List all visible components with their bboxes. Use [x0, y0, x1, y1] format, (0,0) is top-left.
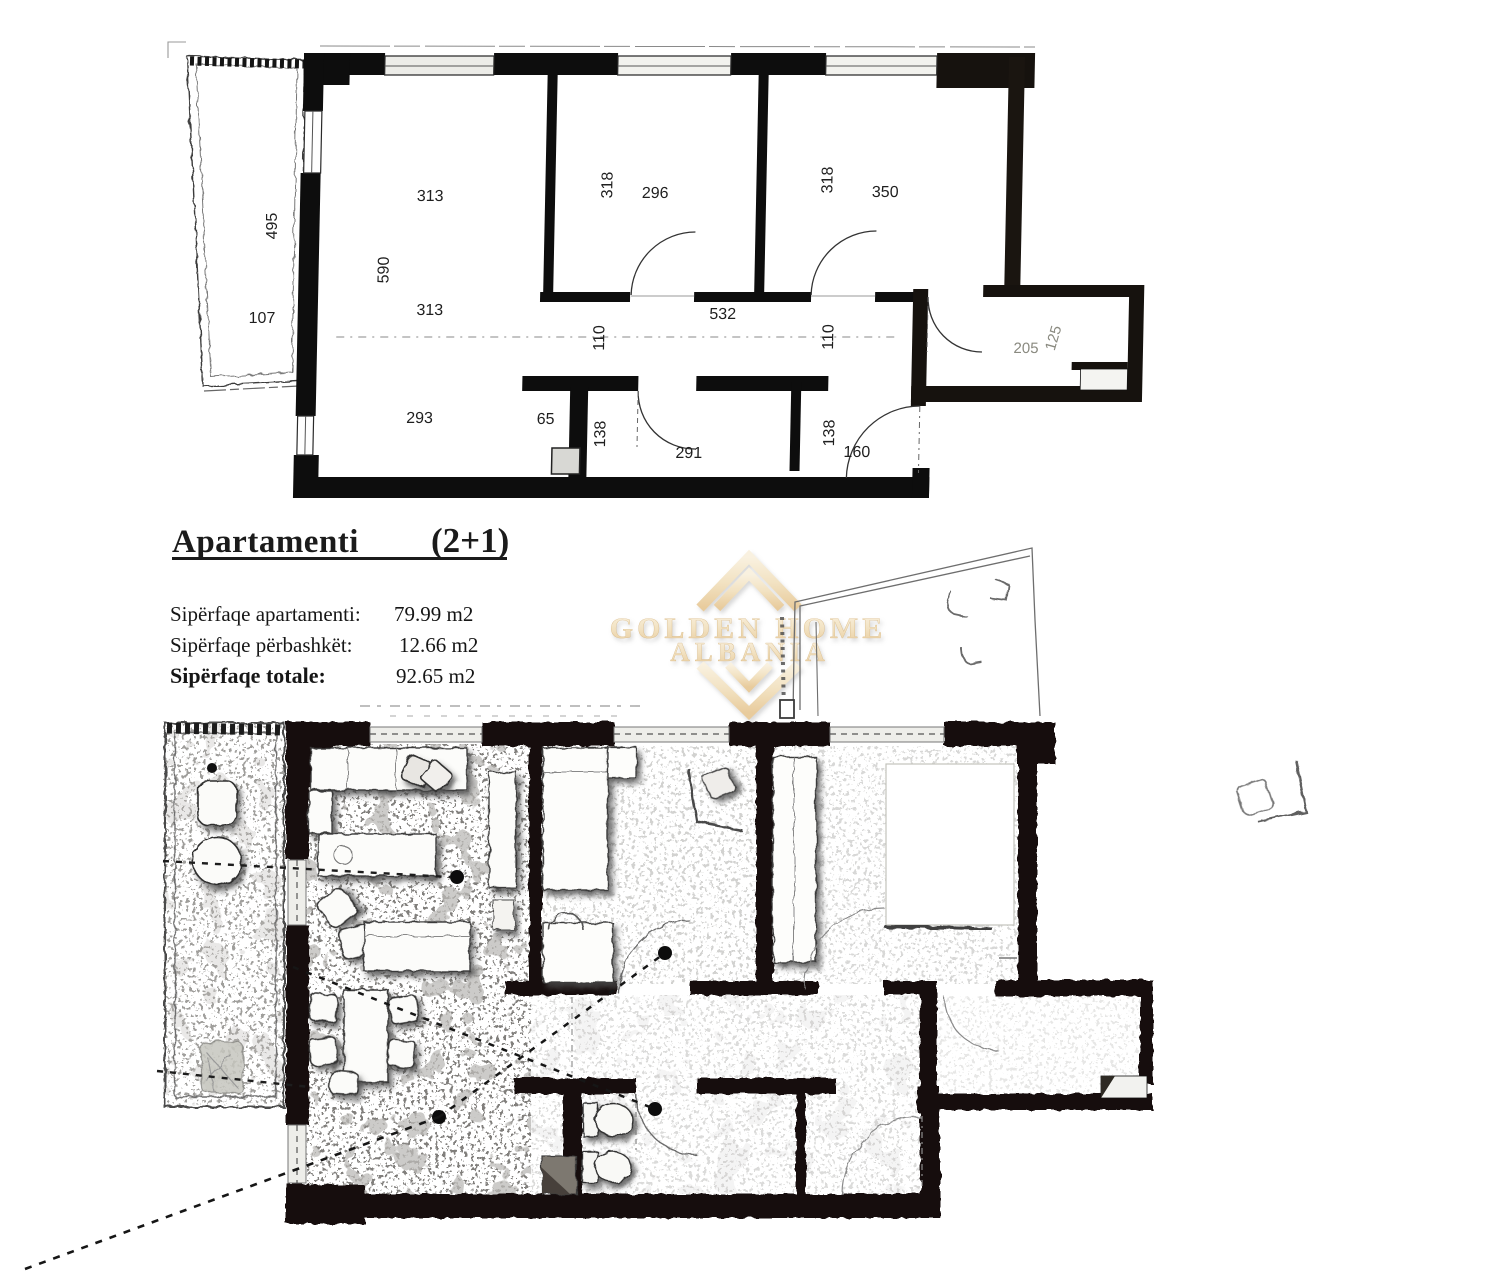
svg-text:318: 318 — [819, 167, 837, 194]
svg-text:110: 110 — [591, 325, 609, 351]
svg-text:313: 313 — [416, 302, 443, 319]
svg-text:313: 313 — [417, 188, 444, 205]
svg-text:138: 138 — [821, 420, 839, 447]
svg-text:205: 205 — [1013, 340, 1038, 357]
svg-text:107: 107 — [249, 310, 276, 327]
svg-text:495: 495 — [264, 213, 281, 240]
svg-text:138: 138 — [592, 421, 610, 448]
svg-text:12.66 m2: 12.66 m2 — [399, 633, 478, 657]
svg-text:160: 160 — [843, 444, 870, 461]
svg-text:92.65 m2: 92.65 m2 — [396, 664, 475, 688]
svg-text:ALBANIA: ALBANIA — [670, 637, 830, 667]
svg-text:Apartamenti: Apartamenti — [172, 524, 359, 560]
svg-text:293: 293 — [406, 410, 433, 427]
svg-text:Sipërfaqe përbashkët:: Sipërfaqe përbashkët: — [170, 633, 353, 657]
svg-text:(2+1): (2+1) — [431, 521, 509, 560]
svg-text:65: 65 — [536, 411, 554, 428]
svg-text:318: 318 — [599, 172, 617, 199]
svg-text:296: 296 — [642, 185, 669, 202]
svg-text:110: 110 — [820, 324, 838, 350]
svg-text:532: 532 — [709, 306, 736, 323]
svg-text:590: 590 — [375, 257, 393, 284]
svg-text:350: 350 — [872, 184, 899, 201]
svg-text:291: 291 — [675, 445, 702, 462]
svg-text:Sipërfaqe apartamenti:: Sipërfaqe apartamenti: — [170, 602, 361, 626]
svg-text:Sipërfaqe totale:: Sipërfaqe totale: — [170, 663, 326, 688]
svg-text:79.99 m2: 79.99 m2 — [394, 602, 473, 626]
